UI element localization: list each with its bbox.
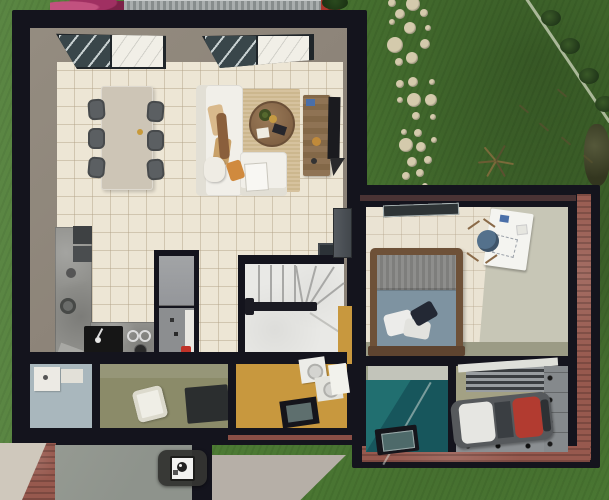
coffee-table — [249, 101, 295, 147]
bed-headboard — [368, 346, 465, 356]
window-white-pane — [112, 35, 163, 67]
pantry-item-2 — [174, 332, 178, 336]
tv-panel — [327, 97, 340, 159]
camera-marker[interactable] — [158, 450, 207, 486]
ext-brick-top — [360, 195, 576, 201]
sideboard — [303, 95, 330, 176]
stove-knob — [139, 330, 151, 342]
vanity-dot — [43, 375, 48, 380]
dining-chair — [87, 156, 106, 178]
stair-rail-cap — [245, 298, 254, 315]
teal-top-strip — [368, 366, 450, 380]
dining-chair — [146, 158, 165, 180]
camera-icon — [170, 456, 195, 481]
right-wall-door — [333, 208, 352, 258]
camera-icon-corner — [173, 470, 178, 475]
stair-wall-left — [238, 255, 245, 362]
desk-item-blue — [499, 215, 509, 223]
edge-shrub — [584, 124, 609, 186]
bed-blanket — [377, 255, 456, 290]
sideboard-item-dark — [311, 158, 317, 164]
counter-slab-1 — [73, 226, 92, 244]
floor-plan-scene — [0, 0, 609, 500]
stair-step-line — [258, 265, 260, 305]
table-papers — [256, 127, 269, 139]
desk-chair — [477, 230, 499, 252]
dining-chair — [87, 98, 105, 120]
bed-crease — [377, 288, 456, 291]
sideboard-item-blue — [306, 99, 315, 106]
table-bowl — [269, 115, 277, 123]
table-prop — [137, 129, 143, 135]
dining-table — [101, 86, 153, 190]
hedge-shrub — [595, 96, 609, 112]
counter-slab-2 — [73, 246, 92, 262]
stair-wall-top — [243, 255, 344, 264]
camera-icon-dot — [179, 464, 182, 467]
bathtub — [132, 385, 169, 423]
pantry-item-1 — [170, 318, 174, 322]
skylight-glass — [381, 430, 415, 452]
counter-pot-2 — [66, 268, 76, 278]
skylight — [375, 425, 420, 456]
dining-chair — [146, 100, 164, 122]
sofa-pouf — [204, 157, 225, 182]
counter-pot-1 — [60, 298, 76, 314]
stair-step-line — [270, 265, 272, 305]
hedge-shrub — [579, 68, 599, 84]
floor-window-glass — [286, 402, 313, 422]
stair-step-line — [282, 265, 284, 305]
hedge-shrub — [560, 38, 580, 54]
wall-bc — [228, 357, 236, 430]
hallway — [236, 364, 347, 430]
camera-icon-lens — [177, 462, 187, 472]
vanity-2 — [61, 369, 83, 383]
grass-tuft — [480, 146, 516, 178]
car-red — [512, 396, 544, 439]
car-white — [458, 401, 496, 444]
washer-box — [328, 363, 350, 395]
sofa-tray — [244, 162, 269, 192]
dining-chair — [88, 128, 105, 149]
brick-line-main — [228, 435, 354, 440]
bed — [370, 248, 463, 354]
bathroom-small — [30, 364, 92, 430]
stair-rail — [247, 302, 317, 311]
kitchen-sink — [84, 326, 123, 353]
shower-mat — [185, 384, 231, 424]
ext-brick-right — [577, 194, 591, 460]
hedge-shrub — [541, 10, 561, 26]
bathroom-main — [100, 364, 228, 430]
wall-ab — [92, 357, 100, 430]
stove-knob — [127, 330, 139, 342]
pantry-top — [159, 256, 194, 306]
sideboard-item-amber — [312, 137, 321, 146]
desk-paper — [516, 224, 528, 235]
dining-chair — [147, 130, 164, 151]
car-windshield — [494, 401, 514, 438]
sink-spout — [97, 328, 103, 338]
floor-window — [279, 397, 319, 429]
table-tablet — [272, 123, 287, 136]
